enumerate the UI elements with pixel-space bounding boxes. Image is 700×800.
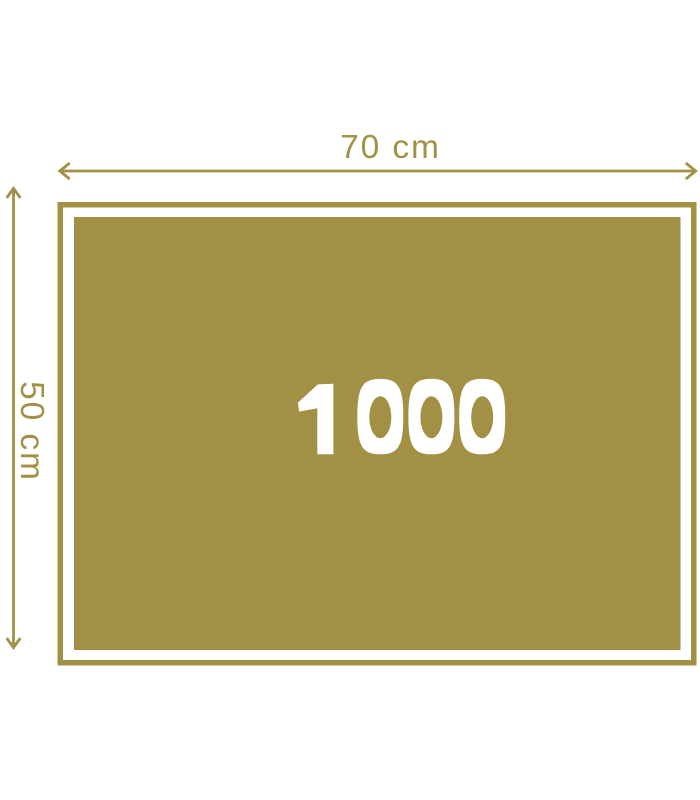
svg-text:70 cm: 70 cm xyxy=(340,129,441,166)
svg-text:50 cm: 50 cm xyxy=(13,381,50,482)
